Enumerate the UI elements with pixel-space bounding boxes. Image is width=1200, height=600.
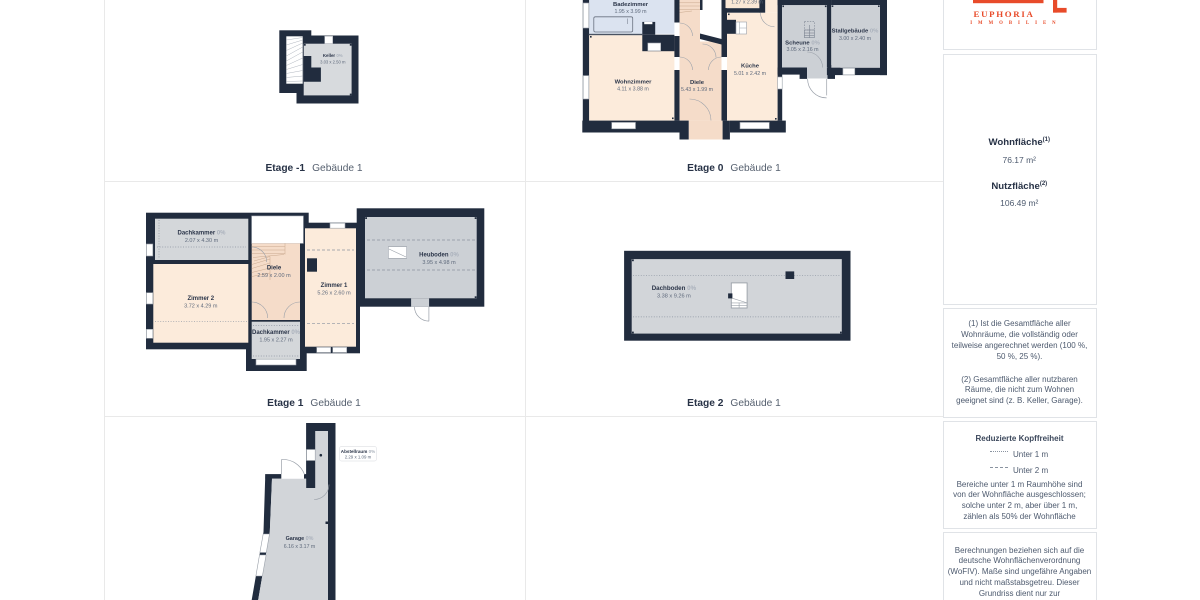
svg-text:Badezimmer: Badezimmer — [613, 2, 649, 8]
svg-text:1.95 x 2.27 m: 1.95 x 2.27 m — [259, 338, 293, 344]
svg-text:Zimmer 1: Zimmer 1 — [321, 283, 348, 289]
svg-text:EUPHORIA: EUPHORIA — [974, 9, 1035, 19]
svg-text:3.72 x 4.29 m: 3.72 x 4.29 m — [184, 304, 218, 310]
svg-text:2.59 x 2.00 m: 2.59 x 2.00 m — [257, 273, 291, 279]
svg-text:4.11 x 3.88 m: 4.11 x 3.88 m — [617, 87, 649, 93]
svg-text:Dachkammer 0%: Dachkammer 0% — [177, 231, 226, 237]
svg-text:3.00 x 2.40 m: 3.00 x 2.40 m — [839, 36, 872, 42]
svg-text:Garage 0%: Garage 0% — [286, 536, 314, 542]
svg-text:5.26 x 2.60 m: 5.26 x 2.60 m — [317, 291, 351, 297]
svg-text:Dachkammer 0%: Dachkammer 0% — [252, 330, 301, 336]
svg-text:Dachboden 0%: Dachboden 0% — [652, 285, 697, 292]
svg-text:3.38 x 9.26 m: 3.38 x 9.26 m — [657, 293, 691, 299]
svg-text:5.43 x 1.99 m: 5.43 x 1.99 m — [681, 87, 714, 93]
svg-text:IMMOBILIEN: IMMOBILIEN — [970, 21, 1061, 26]
svg-text:1.95 x 3.99 m: 1.95 x 3.99 m — [614, 9, 647, 15]
svg-text:Stallgebäude 0%: Stallgebäude 0% — [832, 29, 880, 35]
svg-text:Keller 0%: Keller 0% — [323, 53, 343, 58]
svg-text:Diele: Diele — [690, 80, 705, 86]
svg-text:2.29 x 1.09 m: 2.29 x 1.09 m — [345, 455, 372, 460]
svg-text:Diele: Diele — [267, 266, 282, 272]
svg-text:Abstellraum 0%: Abstellraum 0% — [341, 449, 375, 454]
svg-text:3.03 x 2.50 m: 3.03 x 2.50 m — [320, 60, 346, 65]
svg-text:3.05 x 2.16 m: 3.05 x 2.16 m — [786, 47, 819, 53]
svg-text:5.01 x 2.42 m: 5.01 x 2.42 m — [734, 71, 767, 77]
svg-text:2.07 x 4.30 m: 2.07 x 4.30 m — [185, 238, 219, 244]
svg-text:1.27 x 2.39 m: 1.27 x 2.39 m — [731, 0, 762, 5]
svg-text:Scheune 0%: Scheune 0% — [785, 40, 820, 46]
svg-text:Heuboden 0%: Heuboden 0% — [419, 253, 459, 259]
svg-text:Wohnzimmer: Wohnzimmer — [615, 79, 653, 85]
svg-text:6.16 x 3.17 m: 6.16 x 3.17 m — [284, 544, 315, 550]
svg-text:Zimmer 2: Zimmer 2 — [187, 296, 214, 302]
svg-text:Küche: Küche — [741, 64, 760, 70]
svg-text:3.95 x 4.98 m: 3.95 x 4.98 m — [422, 260, 456, 266]
